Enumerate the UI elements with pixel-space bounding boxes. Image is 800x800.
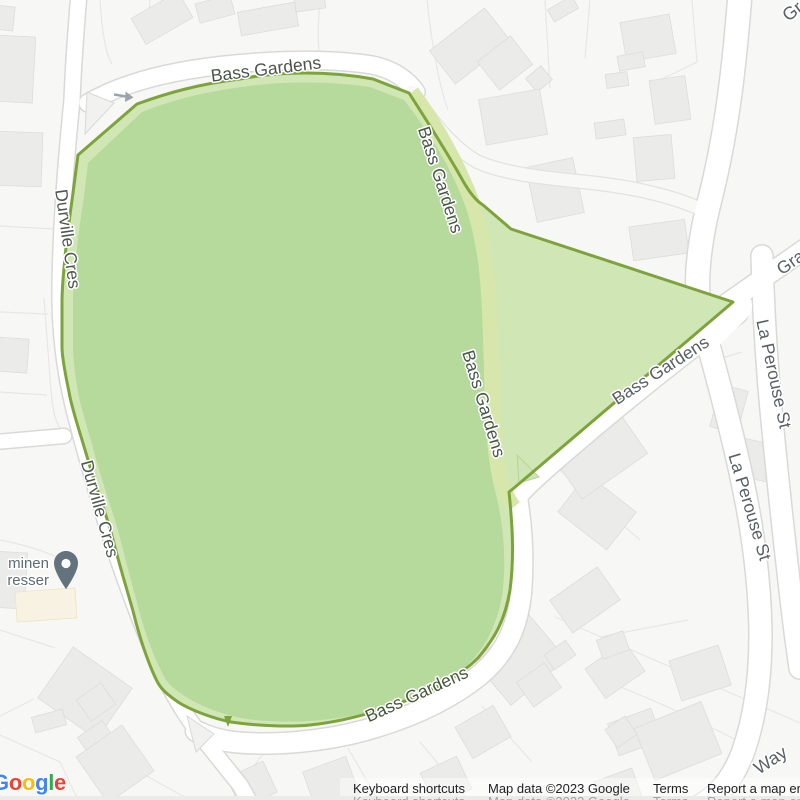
- svg-text:Map data ©2023 Google: Map data ©2023 Google: [488, 794, 630, 800]
- svg-text:Terms: Terms: [653, 794, 689, 800]
- svg-text:Report a map err: Report a map err: [707, 794, 800, 800]
- svg-text:resser: resser: [7, 572, 49, 589]
- svg-text:Google: Google: [0, 770, 66, 795]
- svg-text:Keyboard shortcuts: Keyboard shortcuts: [353, 794, 466, 800]
- svg-text:minen: minen: [8, 555, 49, 572]
